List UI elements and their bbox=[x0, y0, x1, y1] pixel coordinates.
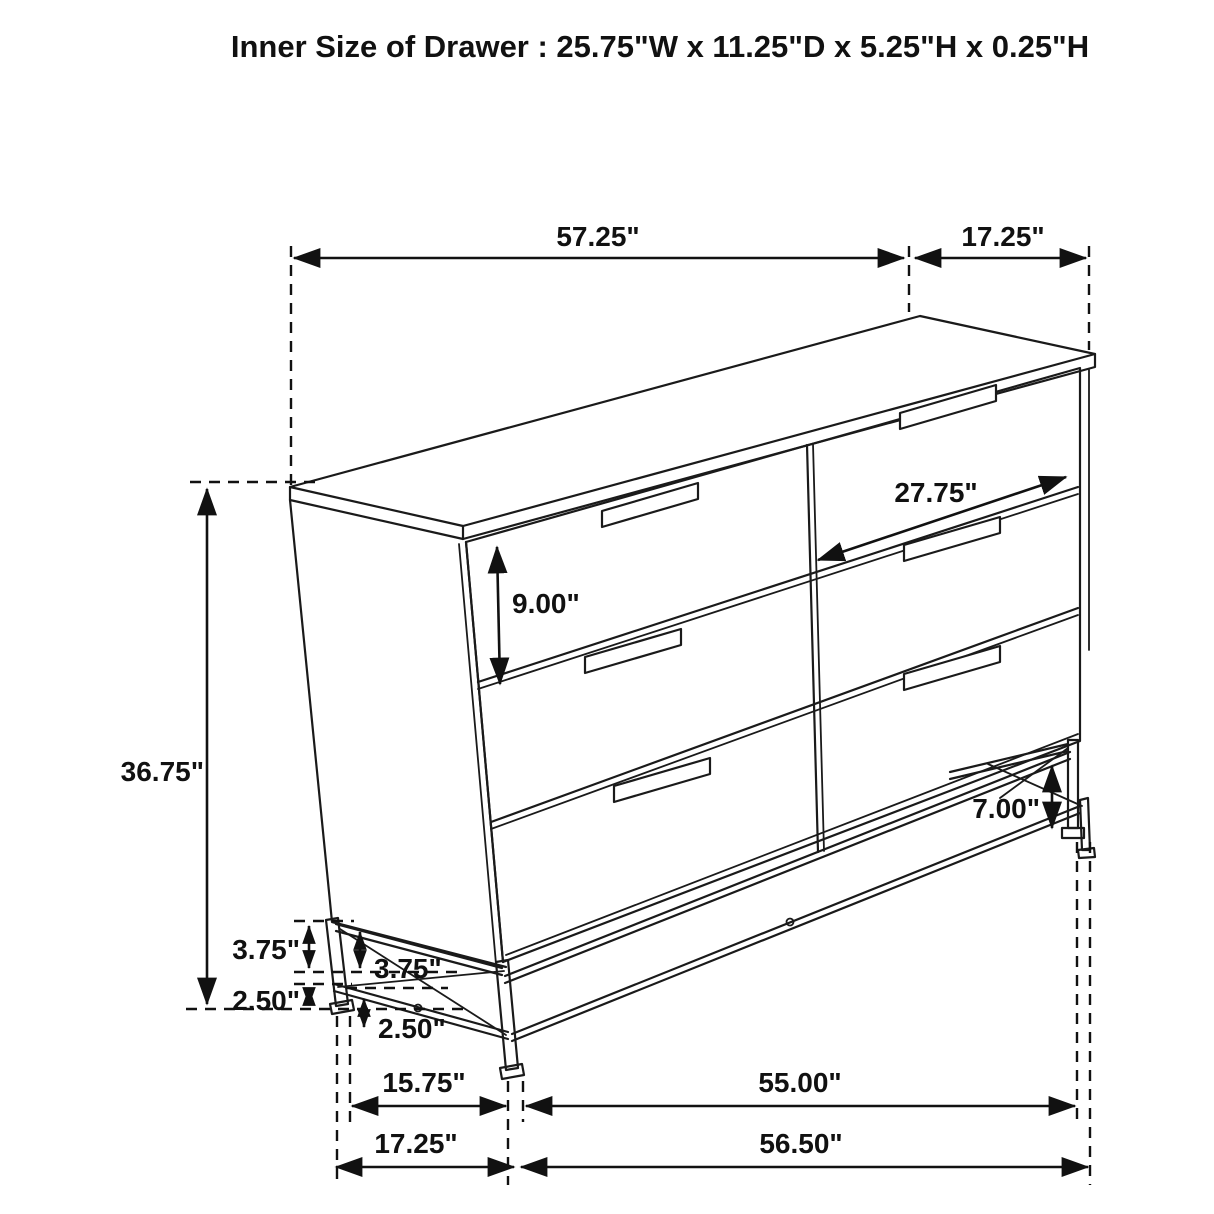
page-title: Inner Size of Drawer : 25.75"W x 11.25"D… bbox=[231, 29, 1089, 64]
dim-label-drawer-height: 9.00" bbox=[512, 588, 580, 619]
dim-label-base-upper-front: 3.75" bbox=[374, 953, 442, 984]
dim-label-base-lower-rear: 2.50" bbox=[232, 985, 300, 1016]
dim-label-top-width: 57.25" bbox=[556, 221, 639, 252]
dim-label-base-width-inner: 55.00" bbox=[758, 1067, 841, 1098]
dim-label-base-width-outer: 56.50" bbox=[759, 1128, 842, 1159]
background bbox=[0, 0, 1214, 1214]
dim-label-base-depth-inner: 15.75" bbox=[382, 1067, 465, 1098]
dim-label-overall-height: 36.75" bbox=[121, 756, 204, 787]
dim-label-base-upper-rear: 3.75" bbox=[232, 934, 300, 965]
dim-label-base-depth-outer: 17.25" bbox=[374, 1128, 457, 1159]
dim-label-base-leg-height: 7.00" bbox=[972, 793, 1040, 824]
dim-label-top-depth: 17.25" bbox=[961, 221, 1044, 252]
dimension-diagram-page: Inner Size of Drawer : 25.75"W x 11.25"D… bbox=[0, 0, 1214, 1214]
dresser-dimension-diagram: Inner Size of Drawer : 25.75"W x 11.25"D… bbox=[0, 0, 1214, 1214]
dim-label-drawer-width: 27.75" bbox=[894, 477, 977, 508]
dim-label-base-lower-front: 2.50" bbox=[378, 1013, 446, 1044]
